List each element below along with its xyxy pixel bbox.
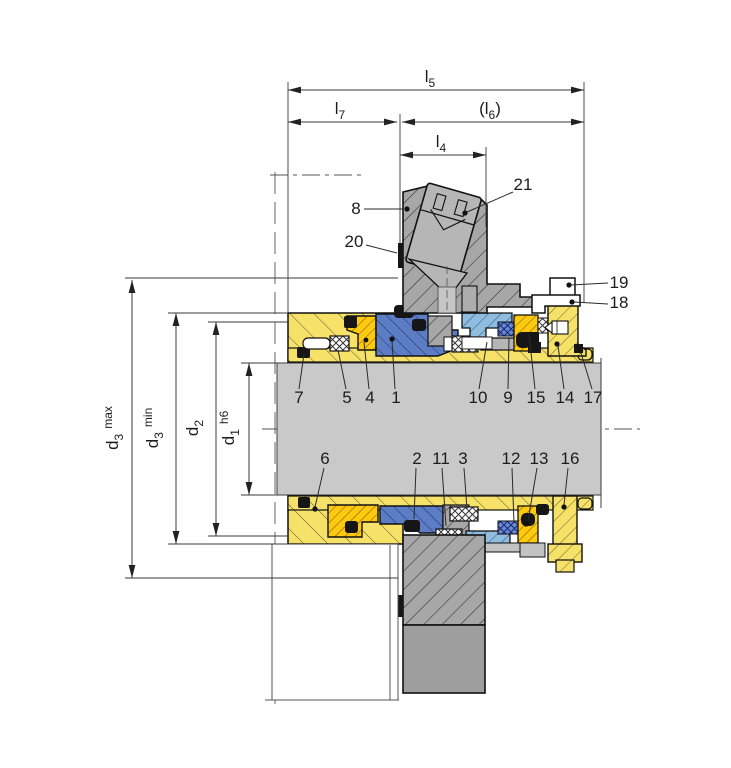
sleeve-lip-lower	[578, 498, 592, 509]
label-d3min: d3min	[141, 408, 166, 449]
spring-element-5	[330, 336, 349, 351]
svg-text:12: 12	[502, 449, 521, 468]
svg-text:21: 21	[514, 175, 533, 194]
svg-text:13: 13	[530, 449, 549, 468]
shaft	[277, 358, 601, 508]
set-screw-body	[552, 321, 568, 334]
o-ring-6	[298, 497, 310, 508]
equipment-housing-lower	[265, 535, 485, 700]
part-label-20: 20	[345, 232, 397, 253]
svg-text:17: 17	[584, 388, 603, 407]
elastomer-12	[498, 521, 518, 534]
svg-text:16: 16	[561, 449, 580, 468]
label-d3max: d3max	[101, 406, 126, 450]
svg-text:10: 10	[469, 388, 488, 407]
label-l5: l5	[425, 67, 436, 90]
drive-pin-upper	[303, 338, 330, 349]
part-label-8: 8	[351, 199, 409, 218]
gap-ring-upper	[462, 337, 492, 349]
svg-text:7: 7	[294, 388, 303, 407]
svg-text:19: 19	[610, 273, 629, 292]
pin-into-housing	[462, 286, 477, 312]
drawing-canvas: l5 l7 (l6) l4 d3max d3min d2 d1h6 8 21 2…	[0, 0, 731, 768]
svg-text:1: 1	[391, 388, 400, 407]
o-ring-lower-a	[345, 521, 358, 533]
svg-text:6: 6	[320, 449, 329, 468]
retainer-step-lower	[520, 543, 545, 557]
housing-solid-lower	[403, 625, 485, 693]
shaft-body	[277, 363, 601, 495]
mechanical-seal-drawing: l5 l7 (l6) l4 d3max d3min d2 d1h6 8 21 2…	[0, 0, 731, 768]
label-d2: d2	[183, 420, 206, 436]
elastomer-9	[498, 322, 516, 336]
label-l4: l4	[436, 132, 447, 155]
bore-outline-box	[272, 544, 398, 700]
svg-text:2: 2	[412, 449, 421, 468]
bolt-16-tip	[556, 560, 574, 572]
pin-end-upper	[444, 337, 452, 351]
svg-text:3: 3	[458, 449, 467, 468]
o-ring-4	[344, 316, 357, 328]
snap-ring-17	[574, 344, 583, 353]
housing-hatched-lower	[403, 535, 485, 625]
gasket-20	[398, 243, 403, 268]
svg-text:18: 18	[610, 293, 629, 312]
spring-3a	[450, 507, 478, 521]
o-ring-2	[404, 520, 420, 532]
label-d1: d1h6	[217, 410, 242, 445]
bolt-16-head	[548, 544, 582, 562]
o-ring-1b	[412, 319, 426, 331]
svg-text:20: 20	[345, 232, 364, 251]
svg-text:14: 14	[556, 388, 575, 407]
label-l6: (l6)	[479, 99, 501, 122]
svg-text:15: 15	[527, 388, 546, 407]
setting-block-19	[550, 278, 575, 296]
gasket-lower	[398, 595, 403, 617]
svg-text:9: 9	[503, 388, 512, 407]
svg-text:8: 8	[351, 199, 360, 218]
svg-text:4: 4	[365, 388, 374, 407]
o-ring-lower-b	[536, 504, 549, 515]
svg-text:5: 5	[342, 388, 351, 407]
label-l7: l7	[335, 99, 346, 122]
svg-text:11: 11	[432, 449, 450, 468]
bolt-16-body	[553, 496, 577, 546]
